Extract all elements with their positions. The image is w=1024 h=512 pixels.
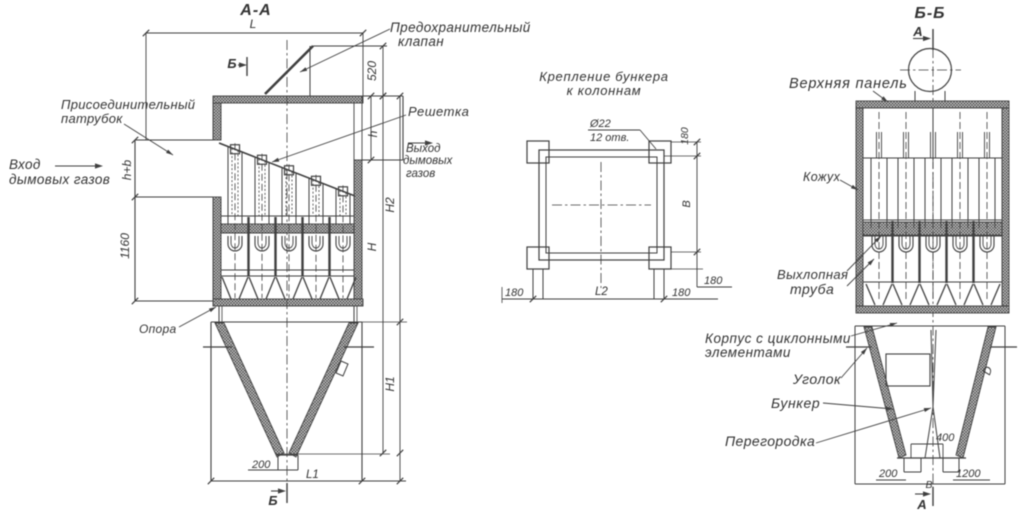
svg-text:Уголок: Уголок (792, 371, 842, 387)
svg-text:180: 180 (672, 287, 691, 299)
svg-text:Корпус с циклонными: Корпус с циклонными (705, 331, 851, 346)
svg-text:Предохранительный: Предохранительный (390, 20, 531, 35)
svg-text:Бункер: Бункер (771, 395, 820, 411)
svg-text:Верхняя панель: Верхняя панель (789, 76, 908, 92)
svg-text:520: 520 (365, 61, 379, 81)
svg-text:Решетка: Решетка (408, 104, 469, 119)
svg-text:к колоннам: к колоннам (567, 83, 642, 98)
svg-text:В: В (925, 479, 932, 491)
svg-text:клапан: клапан (398, 34, 444, 49)
svg-text:труба: труба (790, 281, 834, 297)
svg-text:дымовых газов: дымовых газов (9, 172, 110, 187)
svg-text:200: 200 (251, 459, 271, 471)
svg-text:H: H (365, 242, 379, 251)
svg-text:1160: 1160 (118, 233, 132, 259)
svg-text:Б-Б: Б-Б (915, 5, 946, 22)
svg-text:h+b: h+b (120, 159, 134, 180)
svg-text:Выход: Выход (406, 143, 441, 155)
svg-text:А: А (912, 24, 922, 39)
svg-text:патрубок: патрубок (61, 111, 123, 126)
svg-text:Б: Б (227, 56, 236, 71)
svg-text:Крепление бункера: Крепление бункера (539, 69, 668, 84)
svg-text:Присоединительный: Присоединительный (61, 97, 195, 112)
svg-text:H1: H1 (383, 376, 397, 391)
svg-text:Ø22: Ø22 (589, 118, 611, 130)
svg-text:12 отв.: 12 отв. (590, 132, 629, 144)
svg-text:L2: L2 (595, 286, 608, 298)
svg-text:элементами: элементами (705, 345, 791, 360)
svg-text:h: h (366, 130, 380, 137)
svg-text:Выхлопная: Выхлопная (777, 267, 848, 282)
svg-text:Опора: Опора (139, 322, 176, 336)
svg-text:В: В (681, 200, 693, 207)
svg-text:200: 200 (878, 468, 898, 480)
svg-text:Вход: Вход (9, 157, 41, 172)
svg-text:H2: H2 (383, 197, 397, 213)
svg-text:газов: газов (406, 168, 435, 180)
svg-text:180: 180 (704, 275, 723, 287)
svg-text:Кожух: Кожух (803, 170, 841, 184)
svg-text:L: L (250, 17, 257, 31)
svg-text:180: 180 (505, 287, 524, 299)
svg-text:Б: Б (268, 493, 277, 508)
svg-text:180: 180 (679, 127, 691, 145)
svg-text:400: 400 (936, 432, 955, 444)
svg-text:А: А (916, 497, 926, 512)
svg-text:L1: L1 (306, 469, 319, 481)
svg-text:Перегородка: Перегородка (725, 433, 815, 449)
svg-text:дымовых: дымовых (403, 155, 454, 167)
svg-text:1200: 1200 (956, 468, 981, 480)
